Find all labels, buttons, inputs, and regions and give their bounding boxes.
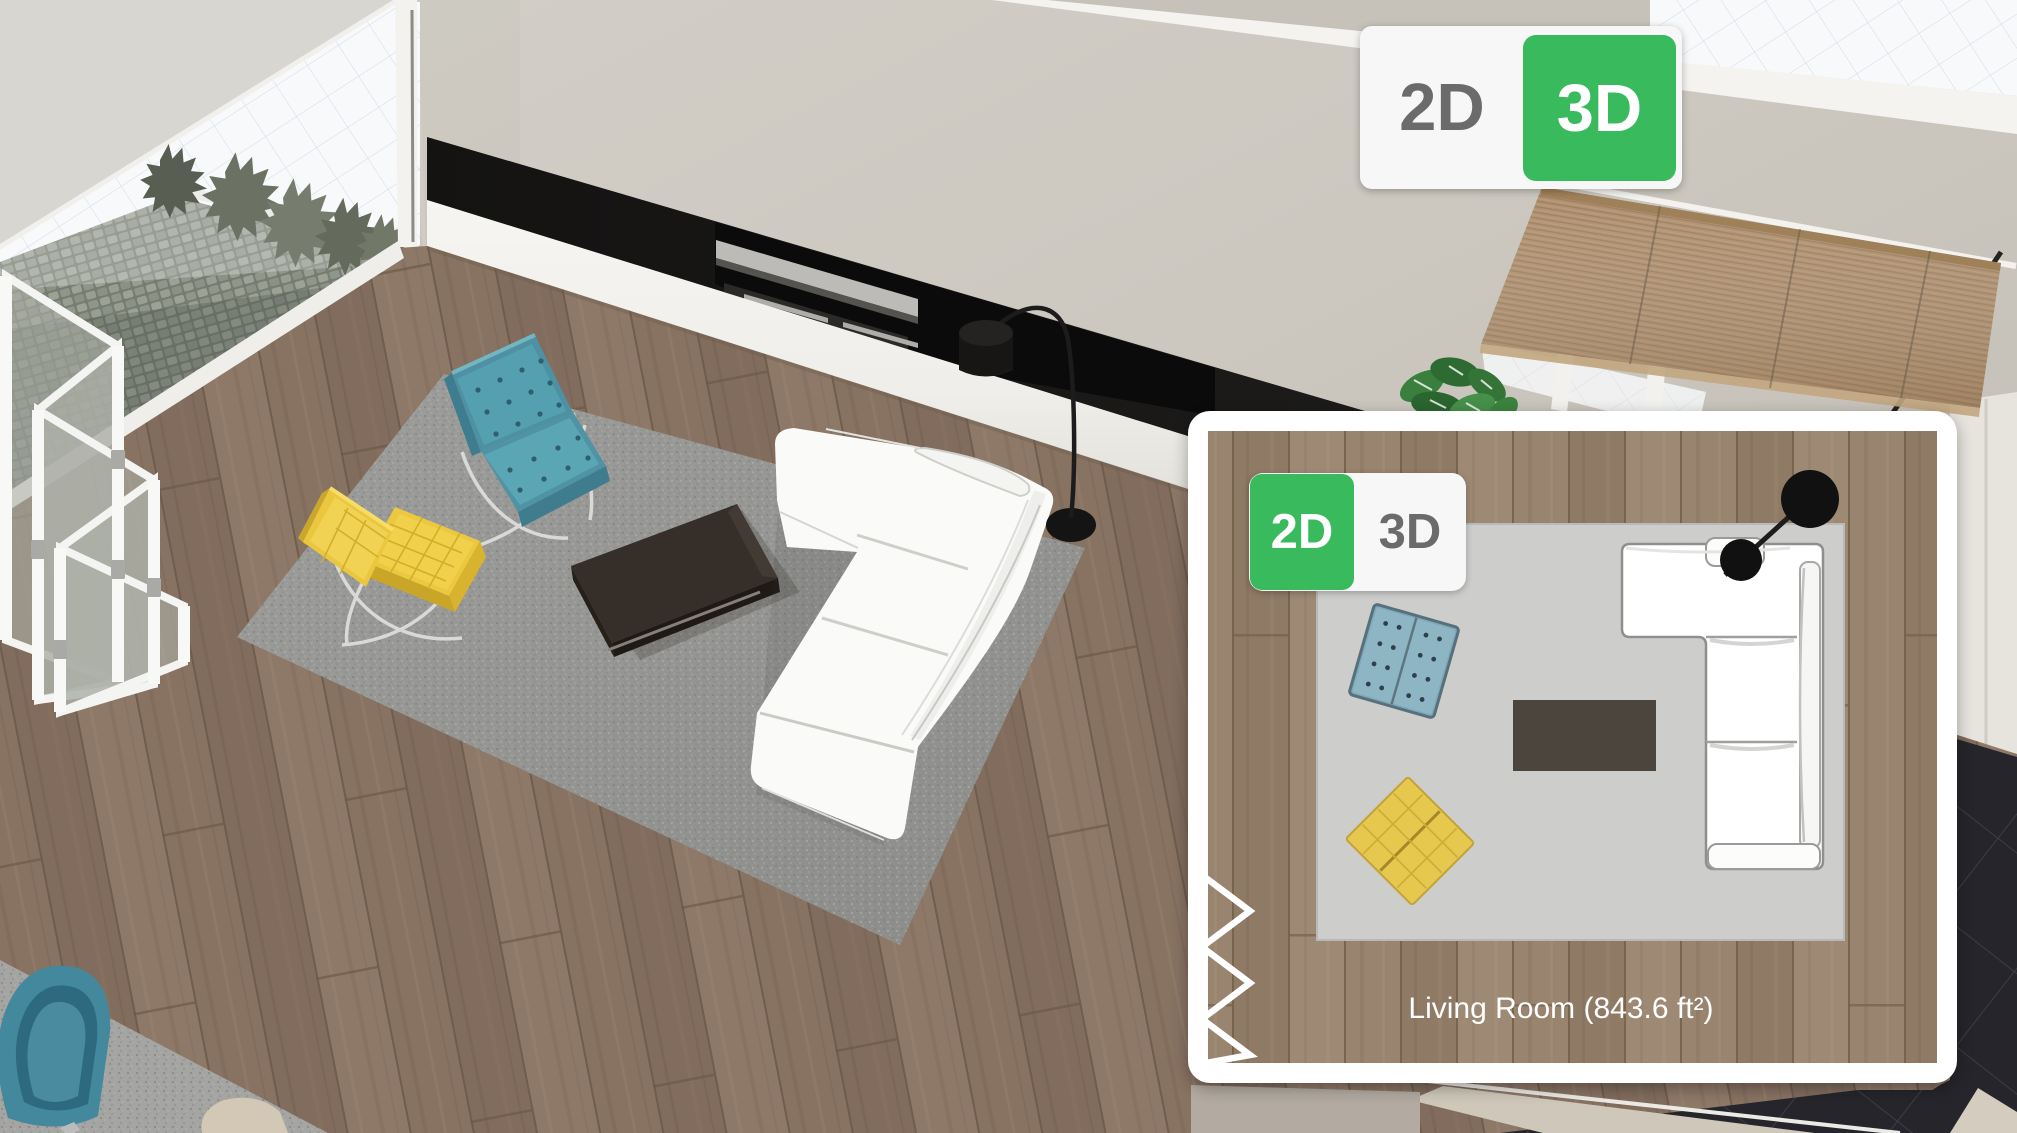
svg-text:Living Room (843.6 ft²): Living Room (843.6 ft²): [1408, 992, 1713, 1025]
